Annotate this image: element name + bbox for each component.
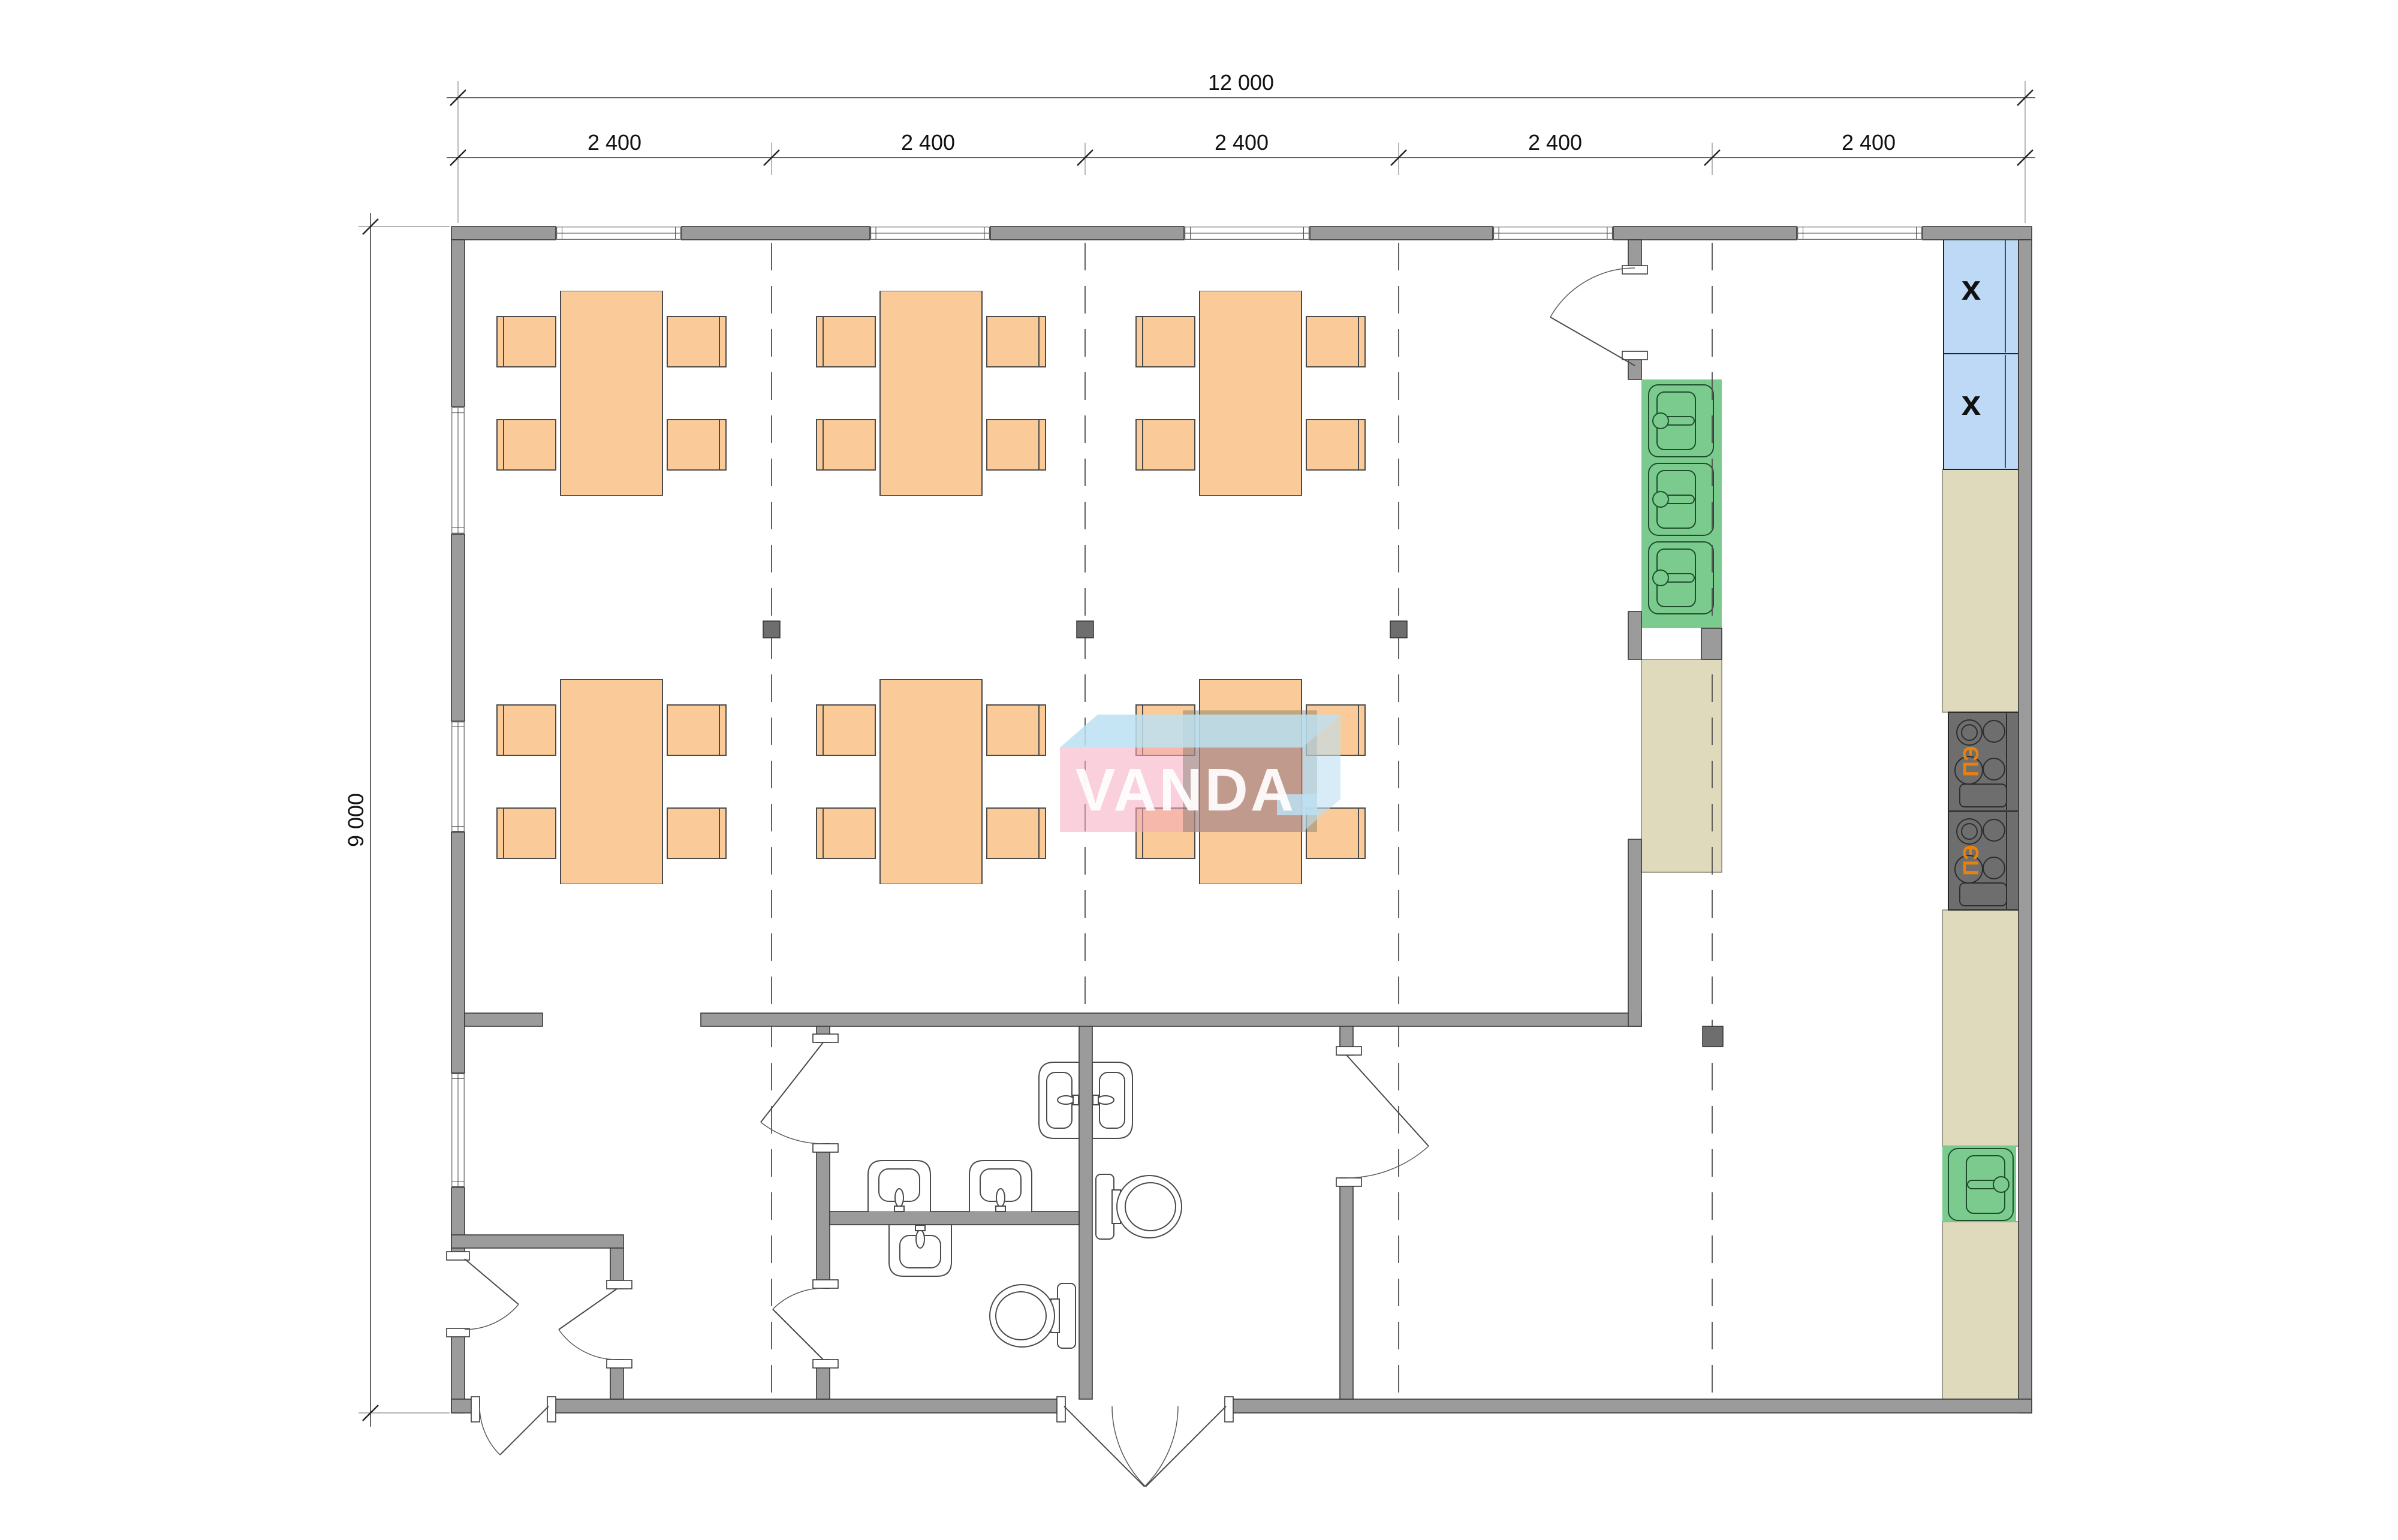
fridge-unit-1 bbox=[1944, 238, 2019, 354]
column bbox=[1390, 621, 1407, 638]
window-icon bbox=[452, 722, 464, 831]
stove-unit-1: ПЭ bbox=[1948, 712, 2019, 811]
fridge-x-mark-icon: x bbox=[1962, 269, 1981, 308]
table-group-5 bbox=[817, 679, 1046, 884]
door-washroom-1 bbox=[761, 1042, 823, 1144]
fridge-unit-2 bbox=[1944, 354, 2019, 469]
door-vestibule-exterior-bottom bbox=[480, 1406, 549, 1455]
kitchen-counter bbox=[1942, 469, 2019, 712]
kitchen-sink-icon bbox=[1649, 463, 1713, 535]
dim-bay-2: 2 400 bbox=[901, 130, 955, 155]
fridge-x-mark-icon: x bbox=[1962, 384, 1981, 423]
dim-total-width: 12 000 bbox=[1208, 70, 1274, 95]
kitchen-counter bbox=[1942, 910, 2019, 1146]
washbasin-icon bbox=[1039, 1062, 1079, 1138]
stove-unit-2: ПЭ bbox=[1948, 811, 2019, 910]
toilet-icon bbox=[990, 1283, 1076, 1348]
window-icon bbox=[557, 227, 681, 239]
washbasin-icon bbox=[868, 1161, 930, 1212]
table-group-3 bbox=[1136, 291, 1365, 496]
window-icon bbox=[871, 227, 990, 239]
kitchen-sink-icon bbox=[1649, 542, 1713, 614]
watermark-top-face bbox=[1060, 715, 1340, 748]
watermark-text: VANDA bbox=[1076, 757, 1296, 824]
door-washroom-2 bbox=[773, 1288, 823, 1360]
table-group-1 bbox=[497, 291, 726, 496]
washbasin-icon bbox=[969, 1161, 1032, 1212]
door-corridor bbox=[1346, 1055, 1429, 1178]
column bbox=[1703, 1026, 1723, 1047]
window-icon bbox=[1494, 227, 1613, 239]
watermark-logo: VANDA bbox=[1060, 710, 1340, 832]
washbasin-icon bbox=[1092, 1062, 1132, 1138]
dim-bay-4: 2 400 bbox=[1528, 130, 1582, 155]
column bbox=[1077, 621, 1093, 638]
sanitary-fixtures bbox=[868, 1062, 1182, 1348]
window-icon bbox=[452, 1074, 464, 1187]
door-main-entrance bbox=[1064, 1406, 1226, 1487]
washbasin-icon bbox=[889, 1225, 951, 1276]
interior-wall bbox=[465, 1013, 543, 1026]
window-icon bbox=[1798, 227, 1922, 239]
table-group-2 bbox=[817, 291, 1046, 496]
serving-counter bbox=[1641, 659, 1722, 872]
table-group-4 bbox=[497, 679, 726, 884]
kitchen-counter bbox=[1942, 1222, 2019, 1399]
dim-total-height: 9 000 bbox=[344, 793, 368, 847]
dim-bay-5: 2 400 bbox=[1842, 130, 1896, 155]
door-vestibule-interior bbox=[559, 1289, 617, 1360]
stove-label: ПЭ bbox=[1959, 746, 1983, 777]
stove-label: ПЭ bbox=[1959, 845, 1983, 876]
dim-bay-3: 2 400 bbox=[1215, 130, 1269, 155]
prep-sink-icon bbox=[1948, 1149, 2013, 1220]
window-icon bbox=[452, 408, 464, 534]
floor-plan-canvas: x x ПЭ ПЭ bbox=[0, 0, 2398, 1540]
toilet-icon bbox=[1096, 1174, 1182, 1239]
kitchen-sink-icon bbox=[1649, 385, 1713, 457]
column bbox=[763, 621, 780, 638]
dim-bay-1: 2 400 bbox=[588, 130, 641, 155]
interior-wall bbox=[701, 1013, 1641, 1026]
kitchen-equipment: x x ПЭ ПЭ bbox=[1641, 238, 2019, 1399]
window-icon bbox=[1185, 227, 1309, 239]
door-vestibule-exterior-left bbox=[465, 1259, 519, 1330]
